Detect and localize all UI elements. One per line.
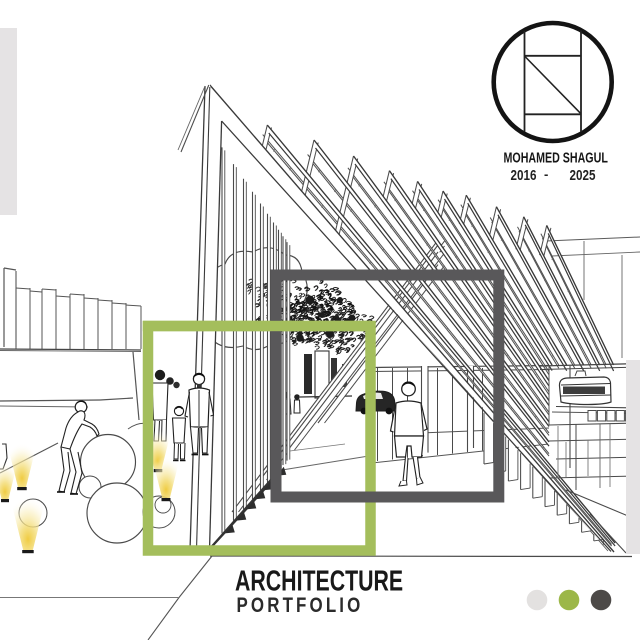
svg-text:2016: 2016 xyxy=(511,167,537,184)
svg-text:-: - xyxy=(544,167,548,182)
svg-text:PORTFOLIO: PORTFOLIO xyxy=(237,593,364,617)
svg-text:2025: 2025 xyxy=(570,167,596,184)
svg-text:MOHAMED SHAGUL: MOHAMED SHAGUL xyxy=(504,149,608,166)
